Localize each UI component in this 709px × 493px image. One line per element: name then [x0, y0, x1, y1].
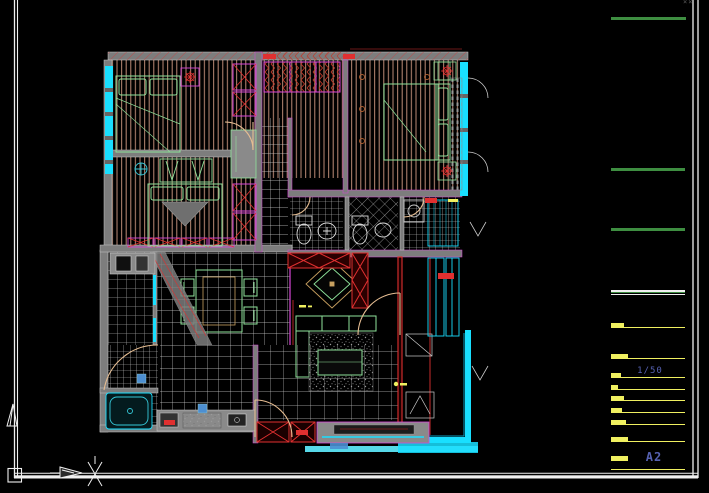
titleblock-row — [611, 384, 685, 390]
cad-application-canvas[interactable]: 1/50 A2 ×× — [0, 0, 709, 493]
titleblock-row — [611, 322, 685, 328]
titleblock-green-line — [611, 17, 686, 20]
titleblock — [0, 0, 709, 493]
titleblock-row — [611, 407, 685, 413]
titleblock-row — [611, 464, 685, 470]
titleblock-row — [611, 436, 685, 442]
titleblock-green-line — [611, 228, 685, 231]
titleblock-row — [611, 353, 685, 359]
titleblock-row — [611, 455, 628, 461]
scale-label: 1/50 — [630, 366, 670, 376]
titleblock-row — [611, 395, 685, 401]
titleblock-row — [611, 419, 685, 425]
titleblock-green-line — [611, 168, 685, 171]
titleblock-divider — [611, 294, 685, 295]
sheet-number: A2 — [636, 450, 672, 464]
corner-snap-marks: ×× — [683, 0, 693, 6]
